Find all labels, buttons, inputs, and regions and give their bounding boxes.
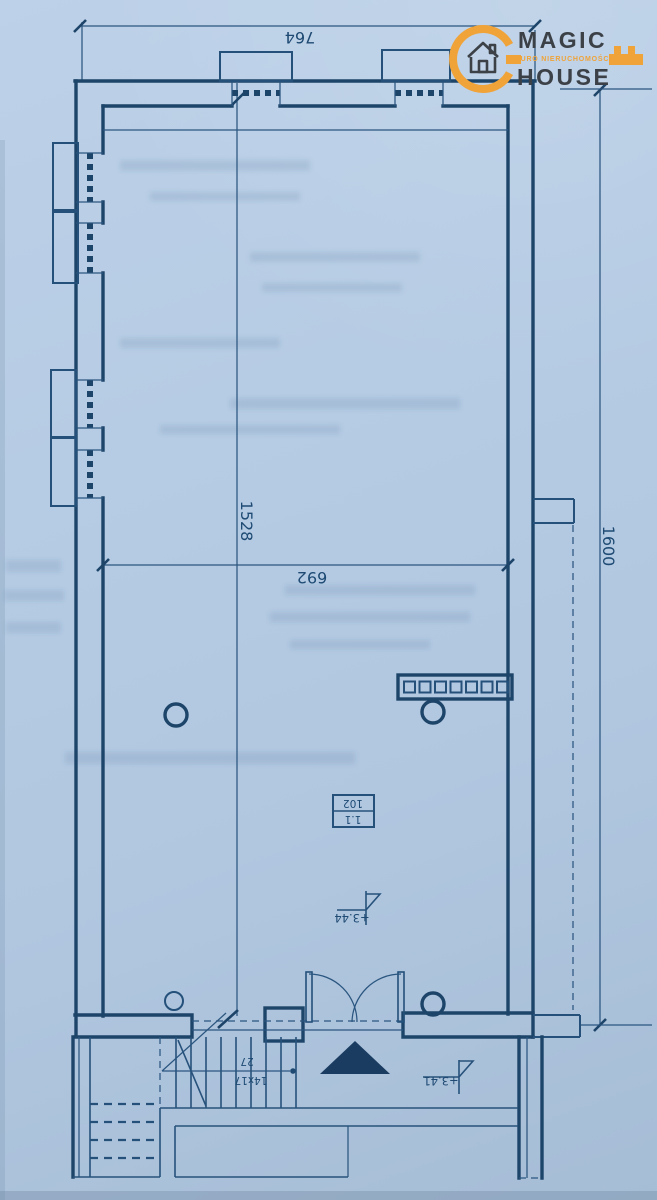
window-sill-top-1 — [220, 52, 292, 81]
stair-riser-label: 14x17 — [235, 1074, 268, 1086]
window-sill-left-4 — [51, 438, 76, 506]
dimension-lines — [74, 20, 652, 1031]
fixtures — [165, 675, 512, 1094]
plan-labels: 764 1528 692 1600 102 1.1 +3.44 +3.41 27… — [235, 28, 618, 1088]
logo-title-line2: HOUSE — [517, 64, 611, 90]
window-sill-left-3 — [51, 370, 76, 437]
lower-landing-outline — [175, 1126, 518, 1177]
dim-label-1528: 1528 — [237, 501, 256, 542]
logo-house-icon — [468, 43, 498, 72]
entrance-arrow-icon — [320, 1041, 390, 1074]
radiator-segments — [404, 682, 508, 693]
floor-plan-drawing: 764 1528 692 1600 102 1.1 +3.44 +3.41 27… — [0, 0, 657, 1200]
dim-label-692: 692 — [297, 568, 328, 587]
stairs — [73, 1010, 518, 1177]
stair-hidden-treads — [90, 1104, 160, 1158]
dim-label-1600: 1600 — [599, 526, 618, 567]
scanned-floor-plan-page: 764 1528 692 1600 102 1.1 +3.44 +3.41 27… — [0, 0, 657, 1200]
dim-label-764: 764 — [285, 28, 316, 47]
logo-title-line1: MAGIC — [518, 27, 607, 53]
window-sill-top-2 — [382, 50, 450, 81]
room-number-label: 1.1 — [345, 813, 362, 825]
door-swing-left — [309, 974, 357, 1022]
walls — [75, 81, 580, 1178]
column-circle-1 — [165, 704, 187, 726]
pier-bottom-right — [519, 1037, 542, 1178]
wall-bottom-left — [75, 1015, 192, 1037]
level-upper-label: +3.44 — [334, 911, 369, 925]
column-circle-2 — [422, 701, 444, 723]
scan-edge-bottom — [0, 1191, 657, 1200]
room-code-label: 102 — [343, 797, 363, 809]
stair-direction-start-dot — [290, 1068, 296, 1074]
column-circle-3 — [165, 992, 183, 1010]
wall-stub-right-middle — [533, 499, 574, 523]
logo-key-bit-icon — [609, 46, 643, 65]
wall-stub-right-bottom — [533, 1015, 580, 1037]
logo-tagline: BIURO NIERUCHOMOŚCI — [512, 54, 612, 63]
windows — [51, 50, 450, 506]
door-swing-right — [352, 974, 401, 1022]
door-pillar — [265, 1008, 303, 1041]
stair-break-line — [178, 1040, 206, 1106]
level-lower-label: +3.41 — [423, 1074, 458, 1088]
stair-treads — [176, 1037, 296, 1108]
stair-tread-label: 27 — [240, 1055, 253, 1067]
scan-edge-left — [0, 140, 5, 1200]
door-leaf-left — [306, 972, 312, 1022]
wall-bottom-right — [403, 1013, 533, 1037]
window-sill-left-2 — [53, 212, 78, 283]
entrance-double-door — [306, 972, 404, 1074]
window-sill-left-1 — [53, 143, 78, 210]
